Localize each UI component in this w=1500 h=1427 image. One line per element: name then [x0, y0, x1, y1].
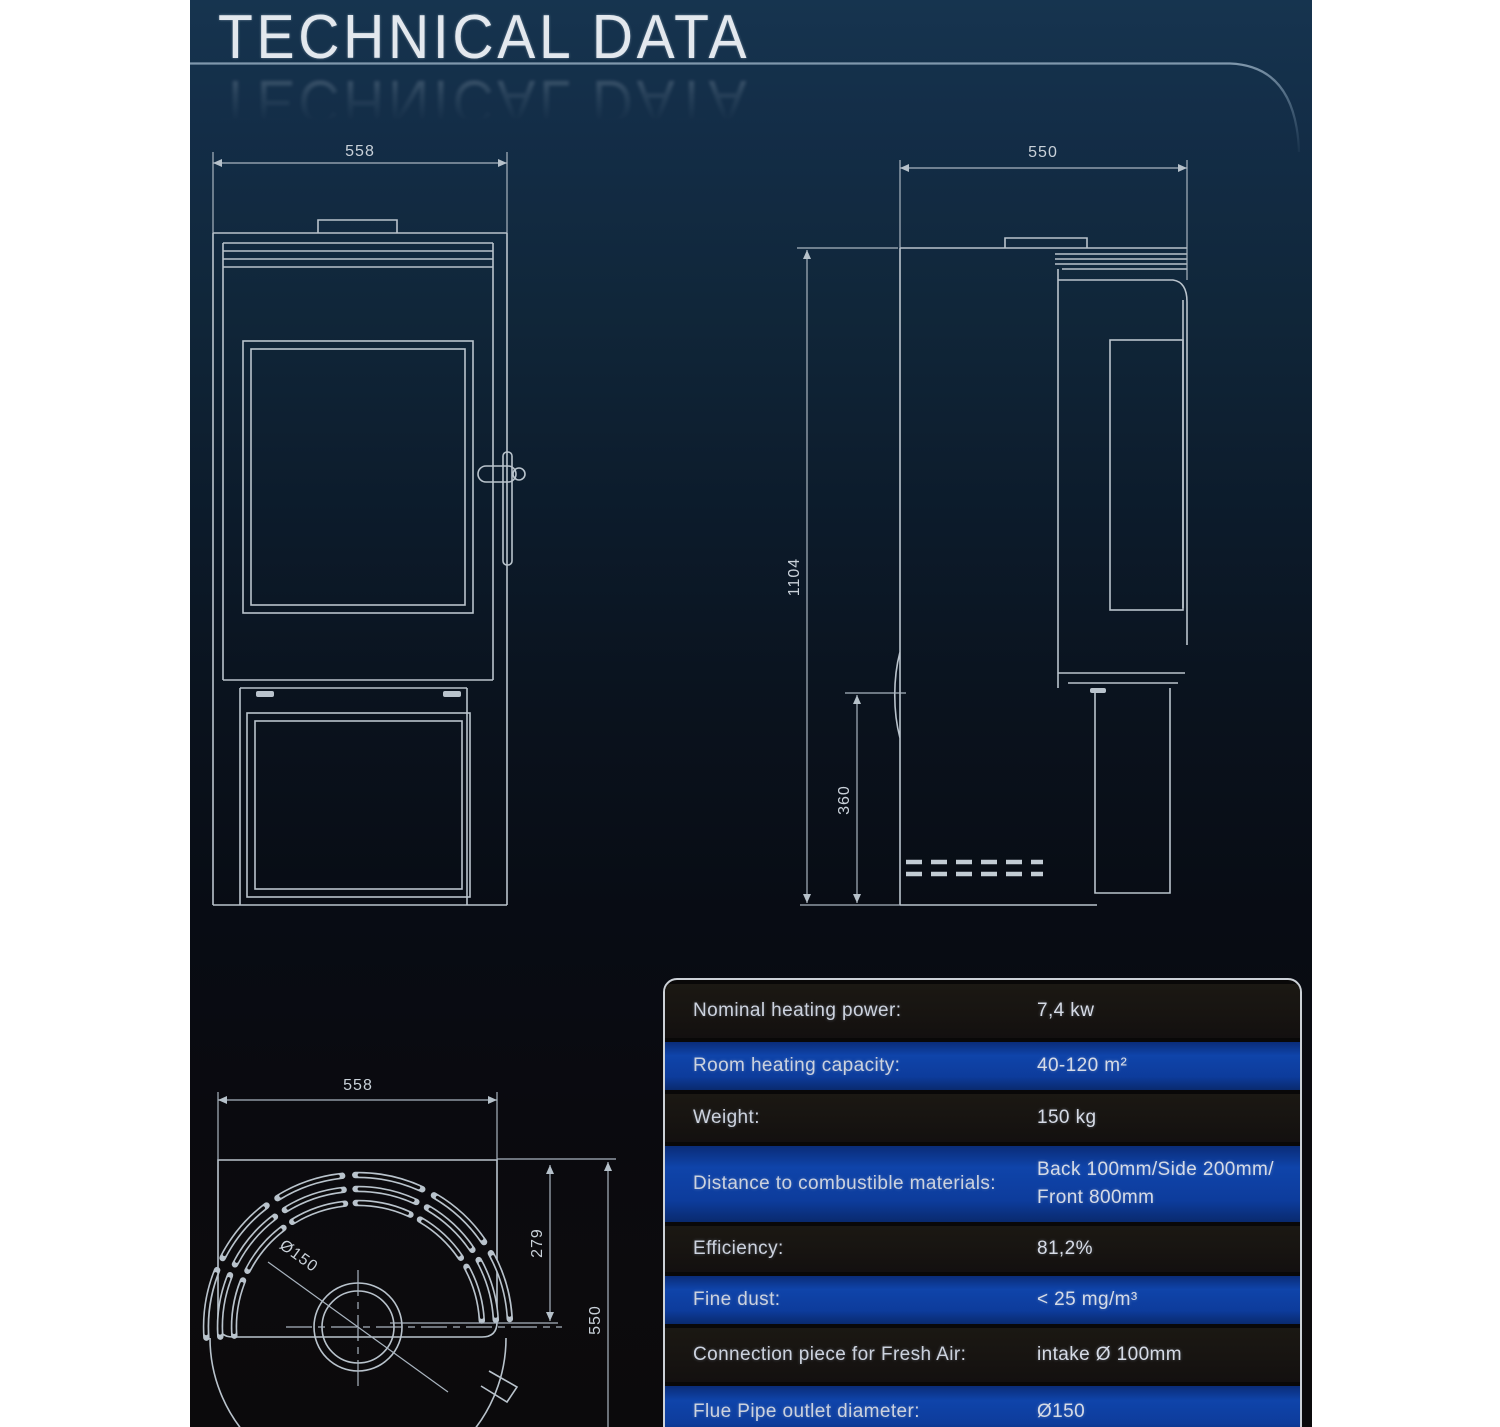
front-view-drawing: 558 [213, 143, 525, 905]
top-vent-slot-arcs [206, 1175, 510, 1338]
side-body-lines [895, 238, 1187, 905]
front-hinge-tab-right [443, 691, 461, 697]
spec-row: Fine dust: < 25 mg/m³ [665, 1276, 1300, 1324]
spec-label: Flue Pipe outlet diameter: [665, 1401, 1037, 1423]
page: { "title": "TECHNICAL DATA", "drawings":… [0, 0, 1500, 1427]
side-height-dimension: 1104 [786, 558, 803, 596]
side-depth-dimension: 550 [1028, 144, 1058, 161]
top-width-dimension: 558 [343, 1077, 373, 1094]
top-view-drawing: 558 279 550 Ø150 [206, 1077, 616, 1427]
front-dim-extensions [213, 152, 507, 233]
top-depth-dimension: 550 [587, 1305, 604, 1335]
spec-label: Connection piece for Fresh Air: [665, 1344, 1037, 1366]
spec-table: Nominal heating power: 7,4 kw Room heati… [663, 978, 1302, 1427]
spec-row: Distance to combustible materials: Back … [665, 1146, 1300, 1222]
spec-label: Room heating capacity: [665, 1055, 1037, 1077]
front-base-door-outer [247, 713, 470, 897]
top-flue-offset-dimension: 279 [529, 1228, 546, 1258]
side-inlet-height-dimension: 360 [836, 785, 853, 815]
spec-value: Ø150 [1037, 1398, 1300, 1427]
spec-value: intake Ø 100mm [1037, 1341, 1300, 1370]
page-title-reflection: TECHNICAL DATA [218, 66, 750, 137]
front-width-dimension: 558 [345, 143, 375, 160]
side-hinge-tab [1090, 688, 1106, 693]
spec-row: Connection piece for Fresh Air: intake Ø… [665, 1328, 1300, 1382]
top-dim-extensions [218, 1092, 616, 1323]
top-flue-diameter-label: Ø150 [276, 1237, 321, 1276]
spec-label: Fine dust: [665, 1289, 1037, 1311]
front-door-handle-end [513, 468, 525, 480]
page-title: TECHNICAL DATA [218, 2, 750, 73]
side-door-glass [1110, 340, 1183, 610]
front-door-glass-outer [243, 341, 473, 613]
spec-row: Nominal heating power: 7,4 kw [665, 984, 1300, 1038]
front-door-glass-inner [251, 349, 465, 605]
spec-label: Distance to combustible materials: [665, 1173, 1037, 1195]
spec-row: Weight: 150 kg [665, 1094, 1300, 1142]
spec-row: Efficiency: 81,2% [665, 1226, 1300, 1272]
front-hinge-tab-left [256, 691, 274, 697]
side-vent-slots [906, 862, 1043, 874]
top-handle-tab [481, 1371, 517, 1402]
spec-value: 150 kg [1037, 1104, 1300, 1133]
spec-value: 7,4 kw [1037, 997, 1300, 1026]
spec-value: < 25 mg/m³ [1037, 1286, 1300, 1315]
front-body-lines [213, 220, 507, 905]
spec-label: Efficiency: [665, 1238, 1037, 1260]
front-door-handle-knob [478, 466, 516, 482]
front-base-door-inner [255, 721, 462, 889]
content-panel: 558 550 1104 360 [190, 0, 1312, 1427]
spec-label: Weight: [665, 1107, 1037, 1129]
spec-value: Back 100mm/Side 200mm/ Front 800mm [1037, 1156, 1300, 1213]
spec-row: Room heating capacity: 40-120 m² [665, 1042, 1300, 1090]
spec-label: Nominal heating power: [665, 1000, 1037, 1022]
side-dim-extensions [797, 160, 1187, 905]
top-centerlines [286, 1270, 562, 1392]
spec-value: 40-120 m² [1037, 1052, 1300, 1081]
spec-row: Flue Pipe outlet diameter: Ø150 [665, 1386, 1300, 1427]
side-view-drawing: 550 1104 360 [786, 144, 1187, 905]
spec-value: 81,2% [1037, 1235, 1300, 1264]
